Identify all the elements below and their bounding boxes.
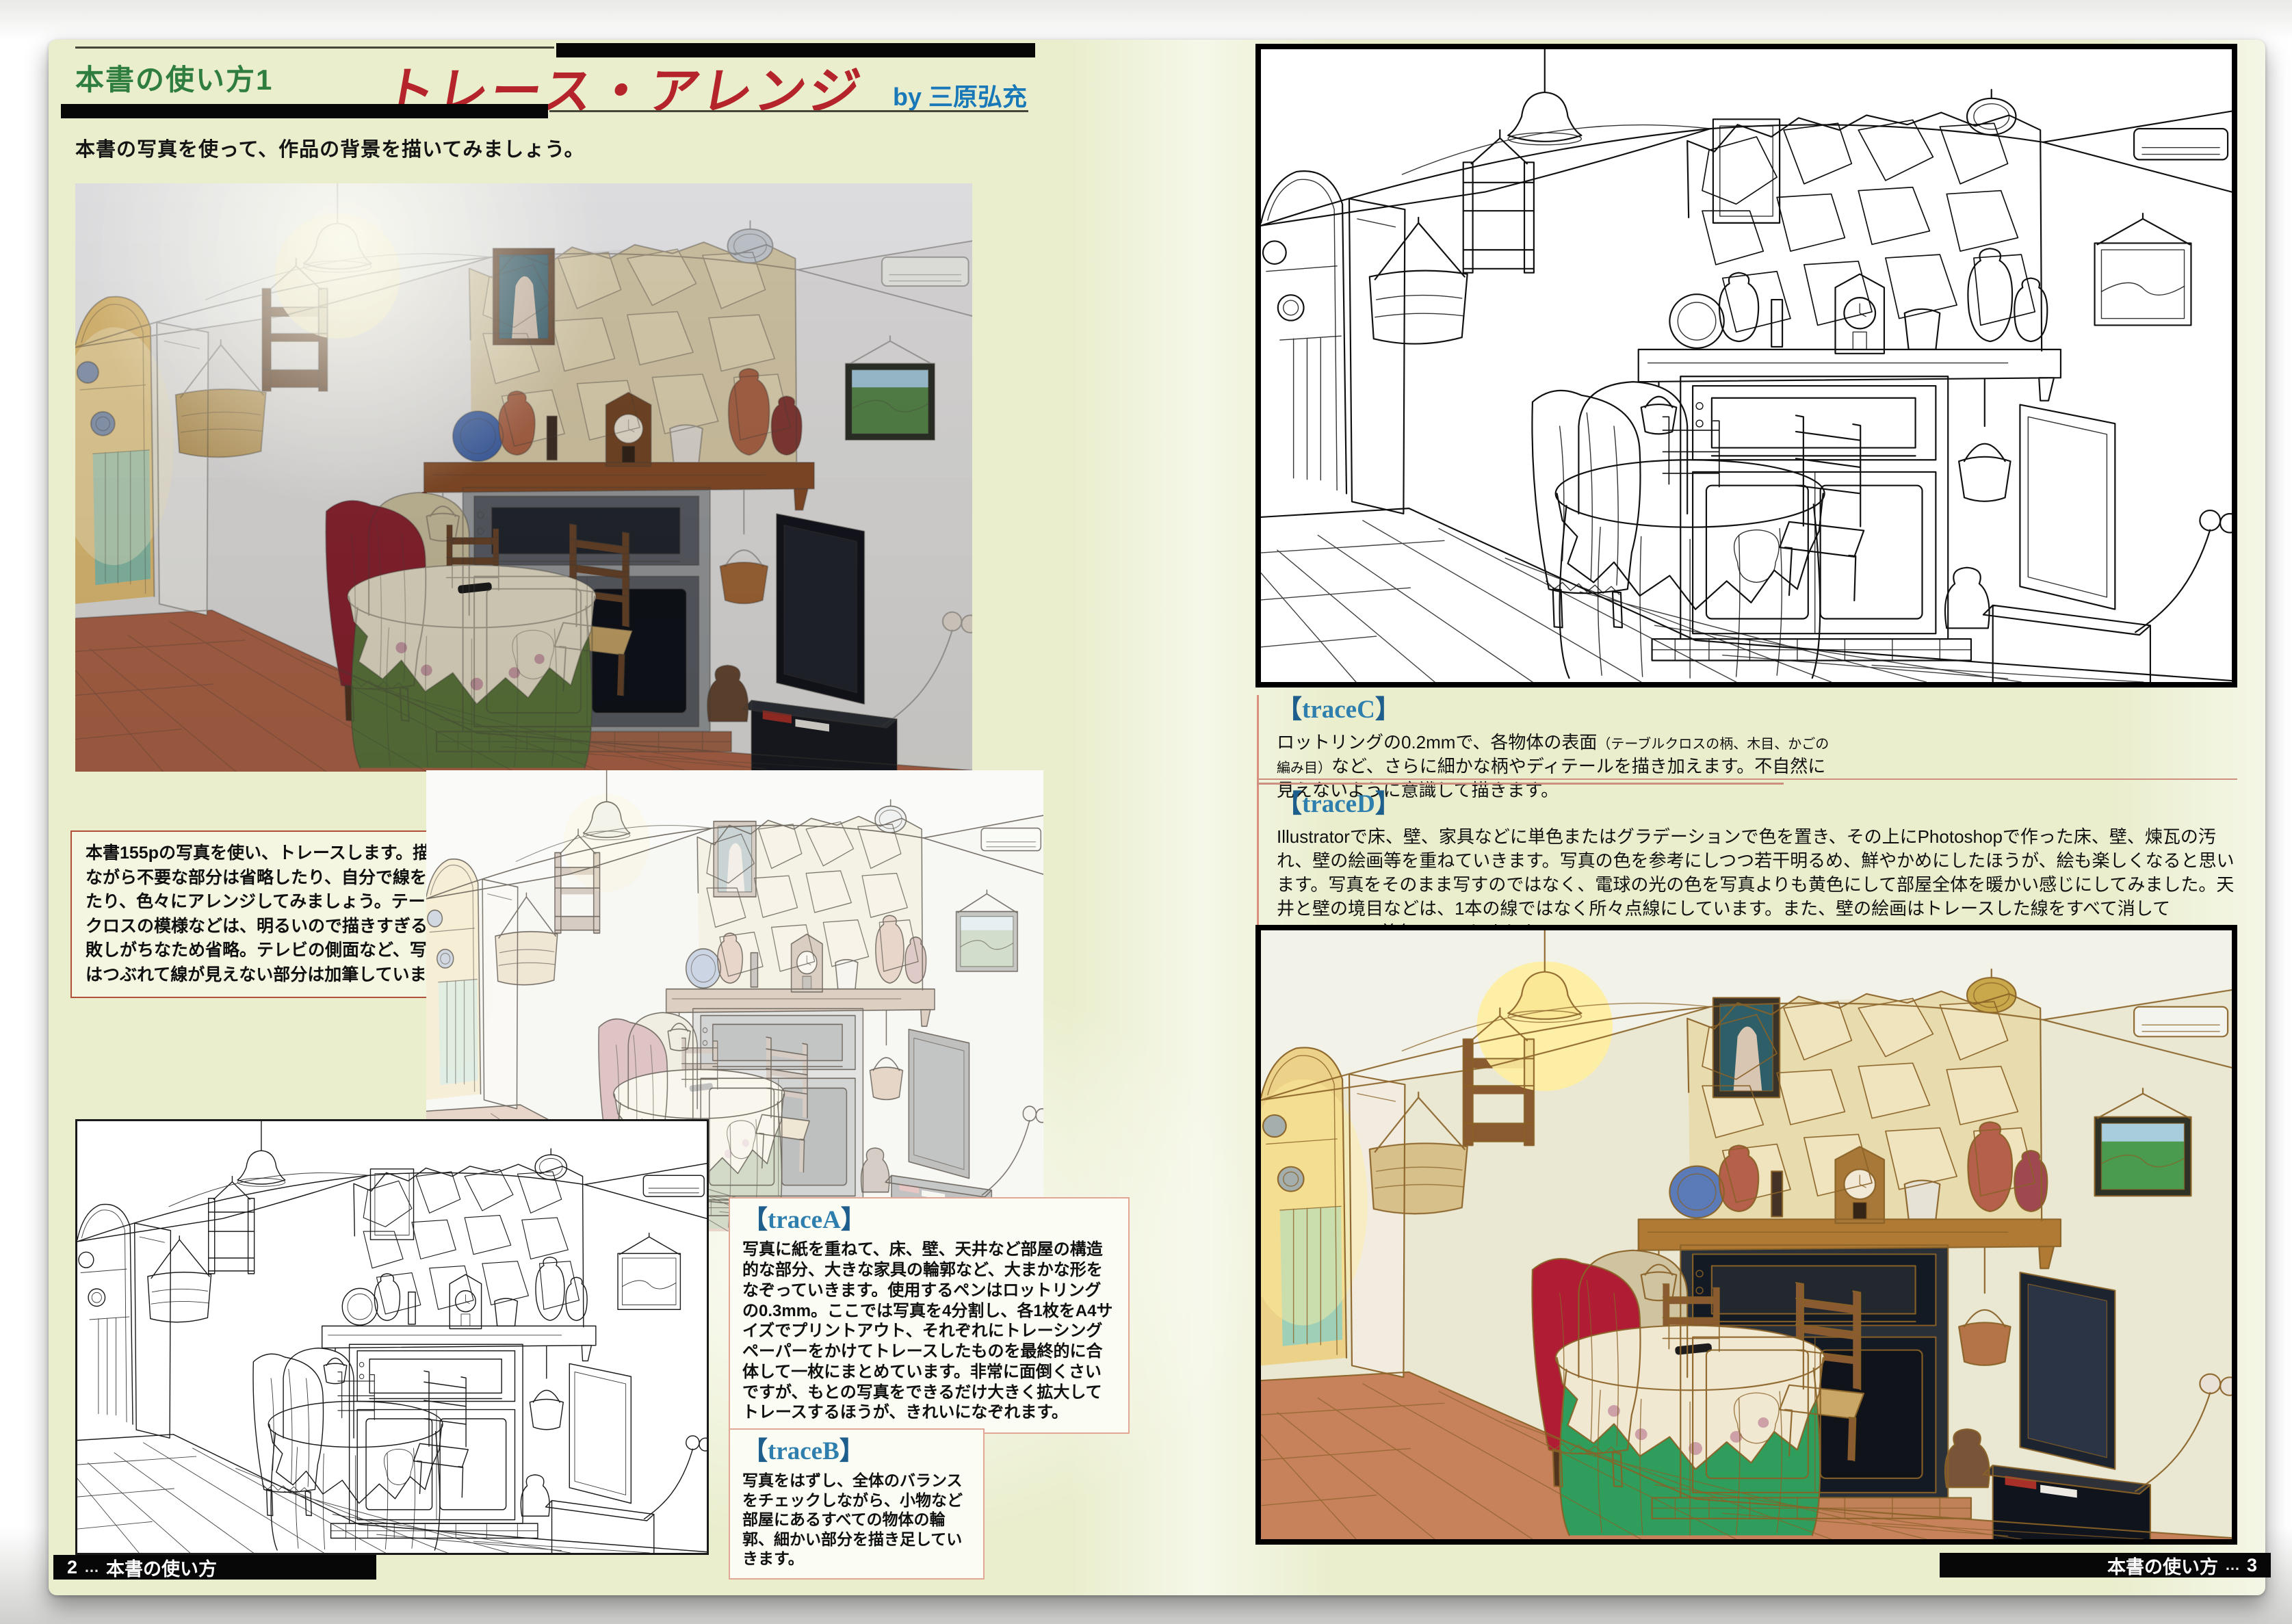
bracket-close: 】 bbox=[1375, 790, 1401, 818]
photo-note-box: 本書155pの写真を使い、トレースします。描きながら不要な部分は省略したり、自分… bbox=[70, 830, 478, 998]
trace-a-text-box: 【traceA】 写真に紙を重ねて、床、壁、天井など部屋の構造的な部分、大きな家… bbox=[729, 1197, 1130, 1434]
trace-a-label: traceA bbox=[768, 1206, 841, 1234]
header-rule-left bbox=[75, 47, 554, 49]
room-photo bbox=[75, 183, 972, 772]
trace-b-text-box: 【traceB】 写真をはずし、全体のバランスをチェックしながら、小物など部屋に… bbox=[729, 1428, 985, 1580]
trace-c-body-pre: ロットリングの0.2mmで、各物体の表面 bbox=[1277, 732, 1597, 752]
bracket-close: 】 bbox=[839, 1437, 865, 1465]
byline: by 三原弘充 bbox=[822, 77, 1027, 113]
trace-a-heading: 【traceA】 bbox=[742, 1205, 1116, 1235]
bracket-open: 【 bbox=[742, 1206, 768, 1234]
trace-c-section: 【traceC】 ロットリングの0.2mmで、各物体の表面（テーブルクロスの柄、… bbox=[1257, 695, 2237, 802]
trace-d-colored-image bbox=[1255, 925, 2237, 1545]
footer-left: 2 … 本書の使い方 bbox=[53, 1555, 376, 1580]
bracket-close: 】 bbox=[841, 1206, 866, 1234]
bracket-open: 【 bbox=[742, 1437, 768, 1465]
header-bar-bottom bbox=[61, 104, 548, 118]
trace-b-heading: 【traceB】 bbox=[742, 1437, 971, 1467]
footer-page-number: 2 bbox=[67, 1557, 77, 1578]
trace-b-label: traceB bbox=[768, 1437, 839, 1465]
footer-separator: … bbox=[84, 1558, 99, 1576]
header-rule-right bbox=[549, 110, 1028, 112]
bracket-open: 【 bbox=[1277, 790, 1302, 818]
trace-b-body: 写真をはずし、全体のバランスをチェックしながら、小物など部屋にあるすべての物体の… bbox=[742, 1471, 971, 1569]
book-spread: 本書の使い方1 トレース・アレンジ by 三原弘充 本書の写真を使って、作品の背… bbox=[0, 0, 2292, 1624]
photo-note-text: 本書155pの写真を使い、トレースします。描きながら不要な部分は省略したり、自分… bbox=[86, 843, 462, 984]
footer-separator: … bbox=[2225, 1556, 2240, 1574]
trace-b-lineart-image bbox=[75, 1119, 709, 1555]
trace-d-illustration bbox=[1261, 930, 2232, 1539]
trace-b-illustration bbox=[77, 1121, 707, 1553]
trace-d-section: 【traceD】 Illustratorで床、壁、家具などに単色またはグラデーシ… bbox=[1257, 789, 2237, 945]
bracket-close: 】 bbox=[1375, 696, 1401, 724]
trace-c-heading: 【traceC】 bbox=[1277, 695, 2237, 725]
trace-c-label: traceC bbox=[1302, 696, 1375, 724]
footer-section-label: 本書の使い方 bbox=[106, 1554, 217, 1581]
footer-page-number: 3 bbox=[2247, 1555, 2257, 1576]
trace-c-lineart-image bbox=[1255, 44, 2237, 687]
trace-d-label: traceD bbox=[1302, 790, 1375, 818]
footer-right: 本書の使い方 … 3 bbox=[1940, 1553, 2271, 1577]
footer-section-label: 本書の使い方 bbox=[2107, 1552, 2218, 1579]
trace-d-heading: 【traceD】 bbox=[1277, 789, 2237, 820]
trace-a-body: 写真に紙を重ねて、床、壁、天井など部屋の構造的な部分、大きな家具の輪郭など、大ま… bbox=[742, 1240, 1116, 1423]
room-photo-illustration bbox=[75, 183, 972, 772]
bracket-open: 【 bbox=[1277, 696, 1302, 724]
lede-text: 本書の写真を使って、作品の背景を描いてみましょう。 bbox=[75, 133, 585, 162]
trace-c-illustration bbox=[1261, 49, 2232, 682]
trace-c-rule-short bbox=[1257, 783, 1784, 785]
magazine-pages: 本書の使い方1 トレース・アレンジ by 三原弘充 本書の写真を使って、作品の背… bbox=[49, 40, 2265, 1595]
trace-c-rule-long bbox=[1257, 778, 2237, 780]
page-kicker: 本書の使い方1 bbox=[75, 57, 273, 99]
